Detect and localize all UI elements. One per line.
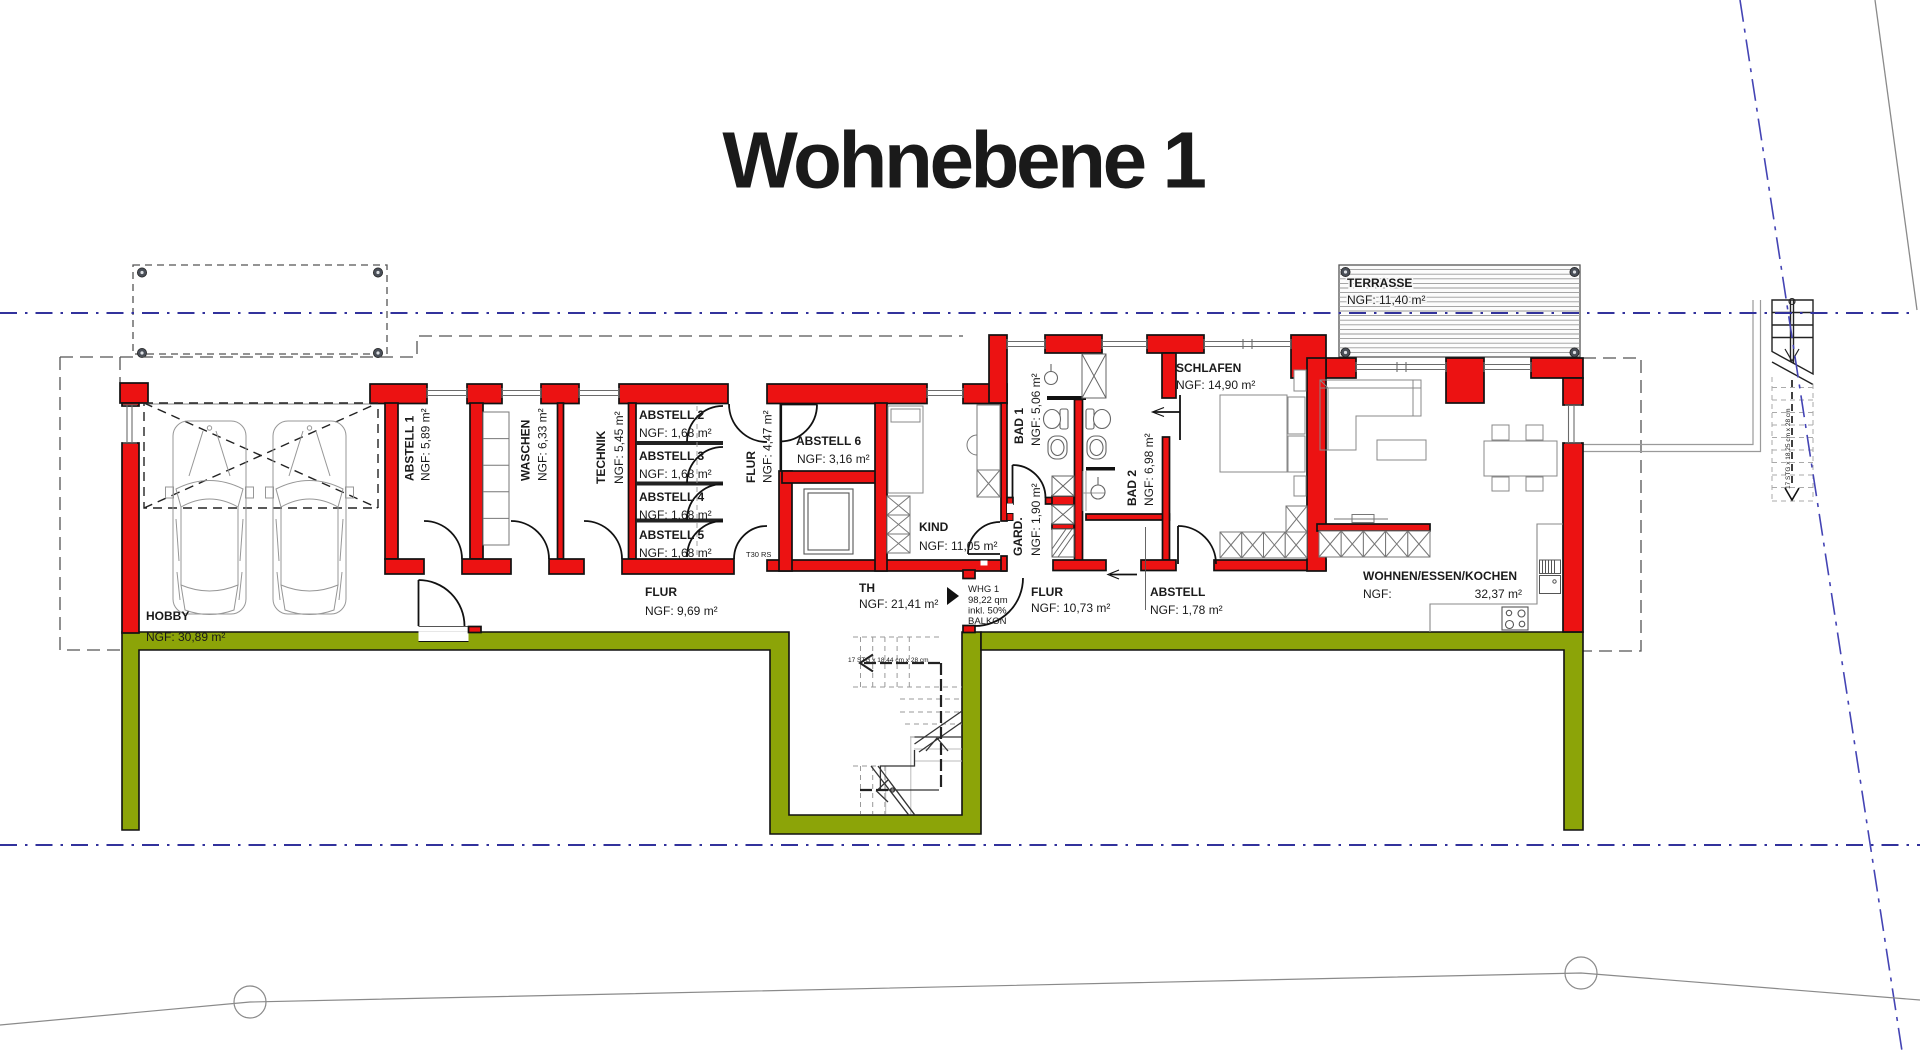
svg-text:BAD 2: BAD 2 [1125,470,1139,506]
svg-text:NGF: 5,89 m²: NGF: 5,89 m² [419,408,433,481]
svg-text:ABSTELL 5: ABSTELL 5 [639,528,704,542]
svg-text:FLUR: FLUR [645,585,677,599]
svg-text:BAD 1: BAD 1 [1012,408,1026,444]
svg-text:17 STG x 18,25 cm x 28 cm: 17 STG x 18,25 cm x 28 cm [1785,408,1792,489]
svg-text:ABSTELL 3: ABSTELL 3 [639,449,704,463]
svg-text:HOBBY: HOBBY [146,609,189,623]
svg-text:SCHLAFEN: SCHLAFEN [1176,361,1241,375]
svg-text:NGF: 10,73 m²: NGF: 10,73 m² [1031,601,1110,615]
svg-text:ABSTELL: ABSTELL [1150,585,1205,599]
svg-text:BALKON: BALKON [968,616,1007,627]
svg-text:NGF: 6,98 m²: NGF: 6,98 m² [1142,433,1156,506]
svg-text:NGF: 1,68 m²: NGF: 1,68 m² [639,546,712,560]
svg-text:TH: TH [859,581,875,595]
svg-text:NGF: 9,69 m²: NGF: 9,69 m² [645,604,718,618]
svg-text:NGF: 5,06 m²: NGF: 5,06 m² [1029,373,1043,446]
svg-text:NGF: 1,68 m²: NGF: 1,68 m² [639,426,712,440]
svg-text:NGF: 14,90 m²: NGF: 14,90 m² [1176,378,1255,392]
svg-text:WASCHEN: WASCHEN [519,420,533,481]
svg-text:17 STG x 18,44 cm x 28 cm: 17 STG x 18,44 cm x 28 cm [848,657,929,664]
svg-text:NGF: 30,89 m²: NGF: 30,89 m² [146,630,225,644]
svg-text:FLUR: FLUR [744,451,758,483]
svg-text:T30 RS: T30 RS [746,550,771,559]
svg-text:NGF: 4,47 m²: NGF: 4,47 m² [761,410,775,483]
svg-text:ABSTELL 2: ABSTELL 2 [639,408,704,422]
svg-text:NGF: 3,16 m²: NGF: 3,16 m² [797,452,870,466]
svg-text:NGF: 11,40 m²: NGF: 11,40 m² [1347,293,1425,307]
svg-text:WHG 1: WHG 1 [968,584,999,595]
svg-text:KIND: KIND [919,520,949,534]
svg-text:inkl. 50%: inkl. 50% [968,606,1007,617]
svg-text:ABSTELL 4: ABSTELL 4 [639,490,704,504]
svg-text:FLUR: FLUR [1031,585,1063,599]
svg-text:WOHNEN/ESSEN/KOCHEN: WOHNEN/ESSEN/KOCHEN [1363,569,1517,583]
svg-text:NGF: 11,05 m²: NGF: 11,05 m² [919,539,997,553]
svg-text:GARD.: GARD. [1011,517,1025,556]
svg-text:NGF: 21,41 m²: NGF: 21,41 m² [859,597,938,611]
svg-text:NGF: 1,68 m²: NGF: 1,68 m² [639,467,712,481]
svg-text:NGF: 1,90 m²: NGF: 1,90 m² [1029,483,1043,556]
svg-text:NGF: 1,68 m²: NGF: 1,68 m² [639,508,712,522]
svg-text:32,37 m²: 32,37 m² [1475,587,1522,601]
svg-text:NGF:: NGF: [1363,587,1392,601]
svg-text:ABSTELL 1: ABSTELL 1 [403,416,417,481]
svg-text:NGF: 1,78 m²: NGF: 1,78 m² [1150,603,1223,617]
svg-text:NGF: 6,33 m²: NGF: 6,33 m² [536,408,550,481]
svg-text:ABSTELL 6: ABSTELL 6 [796,434,861,448]
svg-text:Wohnebene 1: Wohnebene 1 [722,116,1205,205]
svg-text:NGF: 5,45 m²: NGF: 5,45 m² [612,411,626,484]
svg-text:TECHNIK: TECHNIK [594,430,608,484]
svg-text:98,22 qm: 98,22 qm [968,595,1008,606]
svg-text:TERRASSE: TERRASSE [1347,276,1412,290]
